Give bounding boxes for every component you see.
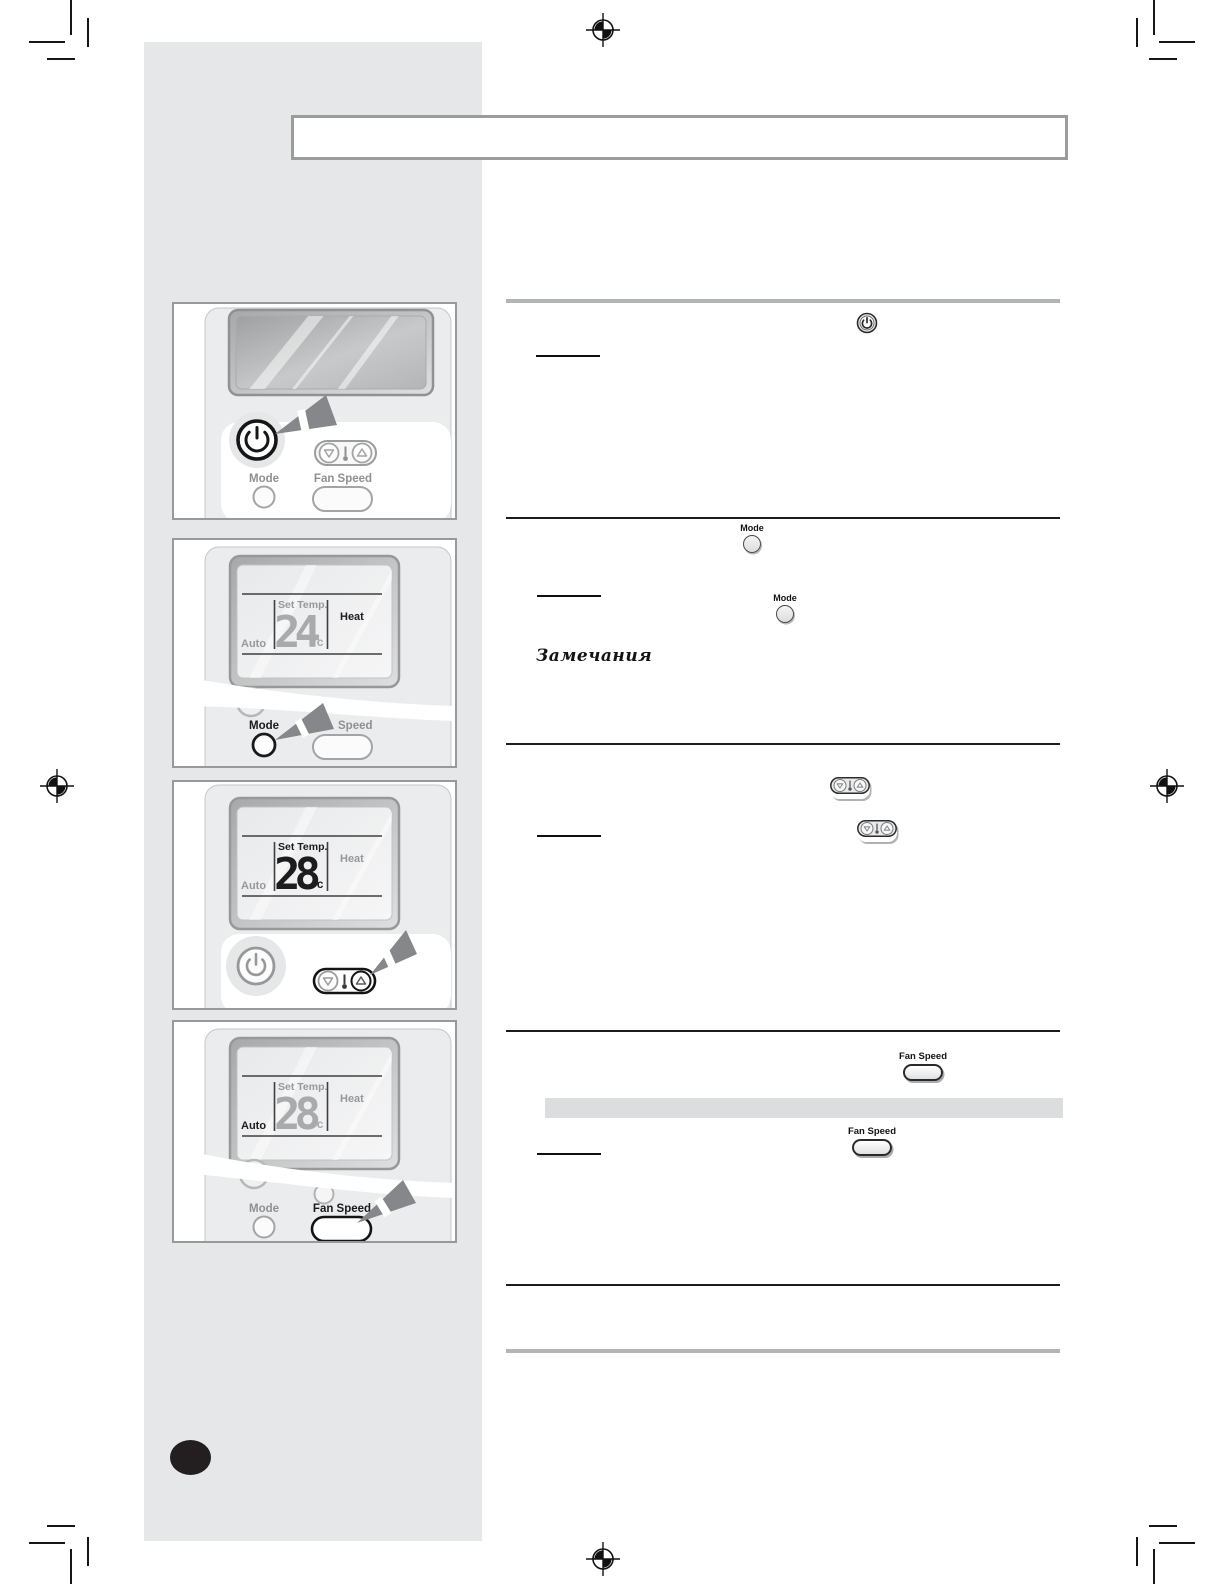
heat-indicator: Heat: [340, 611, 364, 623]
auto-indicator: Auto: [241, 1120, 266, 1132]
registration-mark-top: [585, 12, 621, 48]
fan-speed-label-partial: Speed: [338, 720, 373, 732]
fan-speed-button: [313, 735, 372, 759]
registration-mark-right: [1149, 768, 1185, 804]
illustration-panel-step1: Mode Fan Speed: [172, 302, 457, 520]
remote-illustration-fan: Set Temp. 28 °c Heat Auto Mode Fan Speed: [174, 1022, 455, 1241]
temp-value: 24: [274, 607, 319, 658]
auto-indicator: Auto: [241, 880, 266, 892]
section-divider-4: [506, 1030, 1060, 1032]
temp-up-button: [353, 444, 372, 463]
temp-down-button: [319, 972, 338, 991]
mode-button: [253, 734, 275, 756]
fan-speed-inline-label: Fan Speed: [845, 1127, 899, 1137]
blank-term-underline-1: [536, 355, 600, 357]
highlight-bar: [545, 1098, 1063, 1118]
temp-unit: °c: [312, 1117, 324, 1131]
fan-speed-button-pill: [852, 1139, 892, 1156]
mode-button-inline-label: Mode: [736, 523, 768, 533]
mode-label: Mode: [249, 1203, 279, 1215]
heat-indicator: Heat: [340, 853, 364, 865]
fan-speed-button: [313, 487, 372, 511]
temp-value: 28: [274, 849, 318, 900]
notes-heading: Замечания: [536, 646, 652, 666]
mode-label: Mode: [249, 473, 279, 485]
fan-speed-inline-icon-a: Fan Speed: [896, 1052, 950, 1081]
temp-down-button: [320, 444, 339, 463]
page-number-bubble: [170, 1440, 211, 1475]
remote-illustration-mode: Set Temp. 24 °c Heat Auto Mode Speed: [174, 540, 455, 766]
illustration-panel-step3: Set Temp. 28 °c Heat Auto: [172, 780, 457, 1010]
mode-button-circle: [743, 535, 761, 553]
temp-buttons-inline-icon-b: [857, 820, 897, 842]
temp-adjust-buttons: [314, 969, 375, 993]
fan-speed-label: Fan Speed: [313, 1203, 371, 1215]
registration-mark-bottom: [585, 1541, 621, 1577]
illustration-panel-step4: Set Temp. 28 °c Heat Auto Mode Fan Speed: [172, 1020, 457, 1243]
section-divider-3: [506, 743, 1060, 745]
fan-speed-label: Fan Speed: [314, 473, 372, 485]
mode-label: Mode: [249, 720, 279, 732]
mode-button-circle: [776, 605, 794, 623]
blank-term-underline-4: [537, 1153, 601, 1155]
mode-button-inline-label: Mode: [769, 593, 801, 603]
temp-up-button: [352, 972, 371, 991]
mode-button: [254, 487, 275, 508]
power-button-inline-icon: [856, 312, 878, 339]
fan-speed-button-pill: [903, 1064, 943, 1081]
temp-adjust-buttons: [315, 441, 376, 465]
section-title-box: [291, 115, 1068, 160]
mode-button-inline-icon-b: Mode: [769, 593, 801, 623]
remote-illustration-temp: Set Temp. 28 °c Heat Auto: [174, 782, 455, 1008]
fan-speed-inline-label: Fan Speed: [896, 1052, 950, 1062]
pointer-arrow-stripe: [301, 410, 306, 433]
temp-buttons-inline-icon-a: [830, 777, 870, 799]
blank-term-underline-2: [537, 595, 601, 597]
section-divider-1: [506, 299, 1060, 303]
mode-button: [254, 1217, 275, 1238]
temp-unit: °c: [312, 635, 324, 649]
temp-value: 28: [274, 1089, 318, 1140]
mode-button-inline-icon-a: Mode: [736, 523, 768, 553]
section-divider-2: [506, 517, 1060, 519]
registration-mark-left: [39, 768, 75, 804]
illustration-panel-step2: Set Temp. 24 °c Heat Auto Mode Speed: [172, 538, 457, 768]
auto-indicator: Auto: [241, 638, 266, 650]
heat-indicator: Heat: [340, 1093, 364, 1105]
blank-term-underline-3: [537, 835, 601, 837]
temp-unit: °c: [312, 877, 324, 891]
fan-speed-inline-icon-b: Fan Speed: [845, 1127, 899, 1156]
remote-illustration-power: Mode Fan Speed: [174, 304, 455, 518]
section-divider-6: [506, 1349, 1060, 1353]
section-divider-5: [506, 1284, 1060, 1286]
